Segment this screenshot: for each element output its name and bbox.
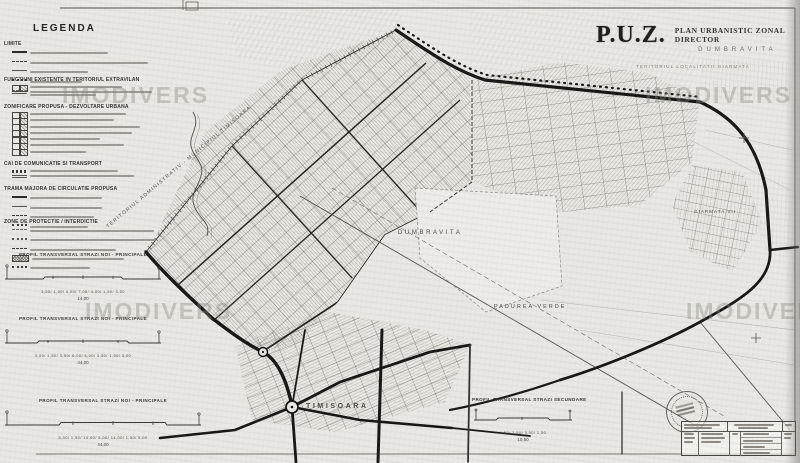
signature-cell: [730, 432, 741, 456]
label-timisoara: TIMISOARA: [306, 403, 369, 410]
watermark: IMODIVERS: [645, 82, 792, 109]
protection-line-icon: [12, 229, 27, 235]
legend-section-zonificare: ZONIFICARE PROPUSA - DEZVOLTARE URBANA: [4, 104, 156, 156]
legend-item: [12, 143, 156, 148]
legend-item: [12, 130, 156, 135]
limit-line-icon: [12, 93, 27, 99]
road-band-icon: [12, 174, 27, 178]
legend-item: [12, 236, 156, 245]
profile-drawing: [3, 257, 163, 283]
legend-item: [12, 112, 156, 117]
profile-dimensions: 1,50/ 3,50/ 3,50/ 1,50: [472, 430, 574, 435]
firm-cell: [682, 422, 728, 431]
watermark: IMODIVERS: [62, 82, 209, 109]
profile-dimensions: 3,50/ 1,50/ 4,00/ 7,00/ 4,00/ 1,50/ 3,50: [3, 289, 163, 294]
title-header: P.U.Z. PLAN URBANISTIC ZONAL DIRECTOR DU…: [596, 22, 800, 53]
profile-4: PROFIL TRANSVERSAL STRAZI SECUNDARE 1,50…: [472, 397, 574, 442]
profile-3: PROFIL TRANSVERSAL STRAZI NOI - PRINCIPA…: [3, 398, 203, 447]
label-padurea-verde: PADUREA VERDE: [494, 304, 566, 310]
legend-item: [12, 169, 156, 173]
legend-item: [12, 174, 156, 178]
watermark: IMODIVERS: [686, 298, 800, 325]
road-line-icon: [12, 206, 27, 212]
zone-box-icon: [12, 149, 27, 154]
legend-item: [12, 124, 156, 129]
road-line-icon: [12, 196, 27, 203]
legend-heading: ZONE DE PROTECTIE / INTERDICTIE: [4, 219, 156, 225]
scan-edge-shadow: [785, 0, 800, 463]
plan-title-block: PLAN URBANISTIC ZONAL DIRECTOR DUMBRAVIT…: [675, 22, 800, 53]
zone-box-icon: [12, 130, 27, 135]
zone-box-icon: [12, 118, 27, 123]
plan-type: PLAN URBANISTIC ZONAL DIRECTOR: [675, 26, 800, 44]
zone-box-icon: [12, 124, 27, 129]
territory-note: TERITORIUL LOCALITATII GIARMATA: [636, 64, 750, 69]
zone-box-icon: [12, 143, 27, 148]
legend-heading: CAI DE COMUNICATIE SI TRANSPORT: [4, 161, 156, 167]
label-dumbravita: DUMBRAVITA: [398, 230, 462, 236]
limit-line-icon: [12, 51, 27, 58]
railway-icon: [12, 170, 27, 173]
title-block-row: [682, 422, 795, 432]
watermark: IMODIVERS: [85, 298, 232, 325]
project-cell: [728, 422, 782, 431]
legend-heading: LIMITE: [4, 41, 156, 47]
title-block: [681, 421, 796, 456]
legend-item: [12, 59, 156, 67]
profile-total: 10,50: [472, 437, 574, 442]
profile-drawing: [3, 403, 203, 429]
details-cell: [741, 432, 781, 456]
profile-total: 44,00: [3, 442, 203, 447]
puz-title: P.U.Z.: [596, 22, 666, 49]
legend-item: [12, 194, 156, 203]
plan-locality: DUMBRAVITA: [675, 47, 800, 53]
legend-item: [12, 149, 156, 154]
legend-section-cai: CAI DE COMUNICATIE SI TRANSPORT: [4, 161, 156, 179]
profile-total: 44,00: [3, 360, 163, 365]
legend-item: [12, 227, 156, 235]
profile-drawing: [472, 402, 574, 424]
limit-line-icon: [12, 70, 27, 76]
profile-dimensions: 3,00/ 1,50/ 3,50/ 6,00/ 6,00/ 3,50/ 1,50…: [3, 353, 163, 358]
scanned-puz-map-sheet: DUMBRAVITA PADUREA VERDE TIMISOARA GIARM…: [0, 0, 800, 463]
legend-item: [12, 49, 156, 58]
legend-item: [12, 118, 156, 123]
legend-item: [12, 137, 156, 142]
zone-box-icon: [12, 137, 27, 142]
label-giarmata-vii: GIARMATA VII: [694, 209, 736, 214]
zone-box-icon: [12, 85, 27, 90]
zone-box-icon: [12, 112, 27, 117]
legend-item: [12, 204, 156, 212]
limit-line-icon: [12, 61, 27, 67]
profile-1: PROFIL TRANSVERSAL STRAZI NOI - PRINCIPA…: [3, 252, 163, 301]
names-cell: [699, 432, 730, 456]
legend-title: LEGENDA: [33, 23, 96, 34]
roles-cell: [682, 432, 699, 456]
legend-item: [12, 68, 156, 76]
protection-line-icon: [12, 238, 27, 245]
profile-dimensions: 5,00/ 1,50/ 14,00/ 5,00/ 14,00/ 1,50/ 5,…: [3, 435, 203, 440]
title-block-row: [682, 432, 795, 456]
legend-heading: TRAMA MAJORA DE CIRCULATIE PROPUSA: [4, 186, 156, 192]
